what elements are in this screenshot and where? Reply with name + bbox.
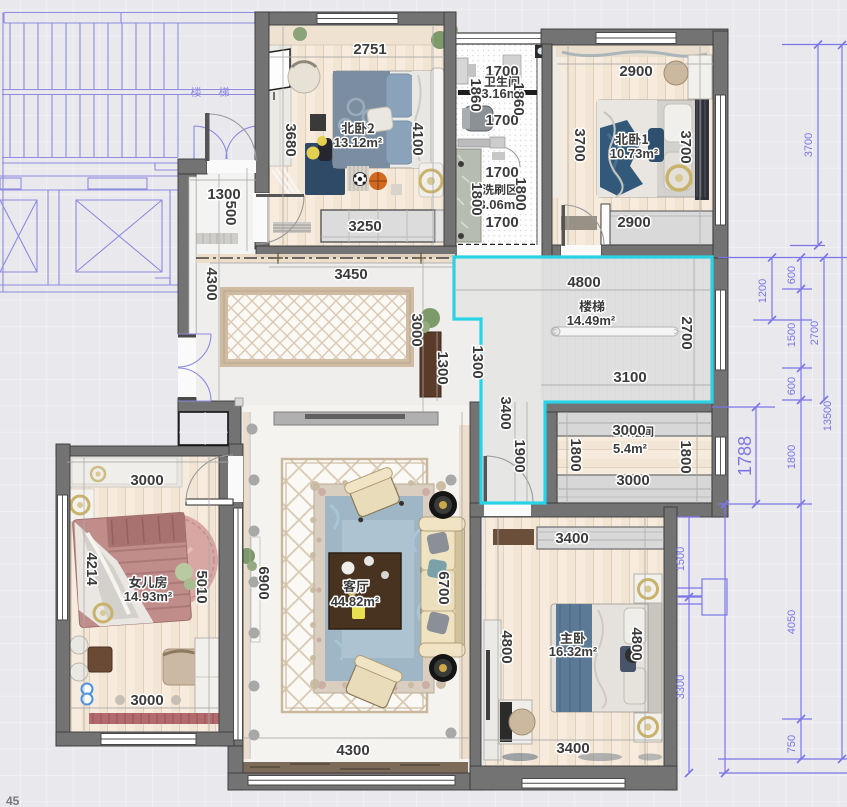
svg-text:3000: 3000	[612, 422, 645, 439]
svg-text:3400: 3400	[556, 740, 589, 757]
svg-text:1800: 1800	[786, 445, 798, 469]
svg-text:4214: 4214	[83, 552, 100, 586]
svg-text:3700: 3700	[803, 133, 815, 157]
svg-text:3250: 3250	[348, 218, 381, 235]
svg-text:3000: 3000	[130, 692, 163, 709]
svg-text:4100: 4100	[409, 122, 426, 155]
svg-text:44.82m²: 44.82m²	[331, 594, 380, 609]
svg-text:3700: 3700	[677, 130, 694, 163]
svg-text:600: 600	[786, 377, 798, 395]
svg-text:3450: 3450	[334, 266, 367, 283]
svg-text:2700: 2700	[809, 321, 821, 345]
svg-text:1300: 1300	[469, 345, 486, 378]
svg-text:3400: 3400	[555, 530, 588, 547]
svg-text:2900: 2900	[617, 214, 650, 231]
svg-text:2751: 2751	[353, 41, 386, 58]
svg-text:5.4m²: 5.4m²	[613, 441, 648, 456]
svg-text:1800: 1800	[567, 438, 584, 471]
svg-text:1500: 1500	[786, 323, 798, 347]
svg-text:3680: 3680	[282, 123, 299, 156]
svg-text:14.49m²: 14.49m²	[567, 313, 616, 328]
svg-text:1700: 1700	[485, 214, 518, 231]
svg-text:600: 600	[786, 266, 798, 284]
svg-text:500: 500	[222, 200, 239, 225]
svg-text:14.93m²: 14.93m²	[124, 589, 173, 604]
svg-text:13500: 13500	[822, 401, 834, 432]
svg-text:2700: 2700	[678, 316, 695, 349]
svg-text:1788: 1788	[735, 436, 755, 476]
svg-text:4050: 4050	[786, 610, 798, 634]
svg-text:1800: 1800	[468, 182, 485, 215]
svg-text:4800: 4800	[498, 630, 515, 663]
svg-text:750: 750	[786, 735, 798, 753]
svg-text:1500: 1500	[675, 547, 687, 571]
svg-text:5010: 5010	[193, 570, 210, 603]
svg-text:4800: 4800	[567, 274, 600, 291]
svg-text:4300: 4300	[203, 267, 220, 300]
svg-text:3300: 3300	[675, 675, 687, 699]
svg-text:1800: 1800	[677, 440, 694, 473]
svg-text:1860: 1860	[510, 82, 527, 115]
svg-text:45: 45	[6, 794, 20, 807]
svg-text:1800: 1800	[512, 177, 529, 210]
svg-text:6700: 6700	[435, 571, 452, 604]
svg-text:1860: 1860	[467, 78, 484, 111]
svg-text:3100: 3100	[613, 369, 646, 386]
svg-text:3700: 3700	[571, 128, 588, 161]
svg-text:3000: 3000	[130, 472, 163, 489]
svg-text:4300: 4300	[336, 742, 369, 759]
svg-text:2900: 2900	[619, 63, 652, 80]
svg-text:16.32m²: 16.32m²	[549, 644, 598, 659]
svg-text:1200: 1200	[757, 279, 769, 303]
svg-text:3000: 3000	[408, 313, 425, 346]
svg-text:3400: 3400	[497, 396, 514, 429]
svg-text:1300: 1300	[434, 351, 451, 384]
svg-text:4800: 4800	[628, 627, 645, 660]
svg-text:10.73m²: 10.73m²	[610, 146, 659, 161]
svg-text:13.12m²: 13.12m²	[334, 135, 383, 150]
svg-text:1900: 1900	[511, 439, 528, 472]
svg-text:6900: 6900	[255, 566, 272, 599]
svg-text:3000: 3000	[616, 472, 649, 489]
